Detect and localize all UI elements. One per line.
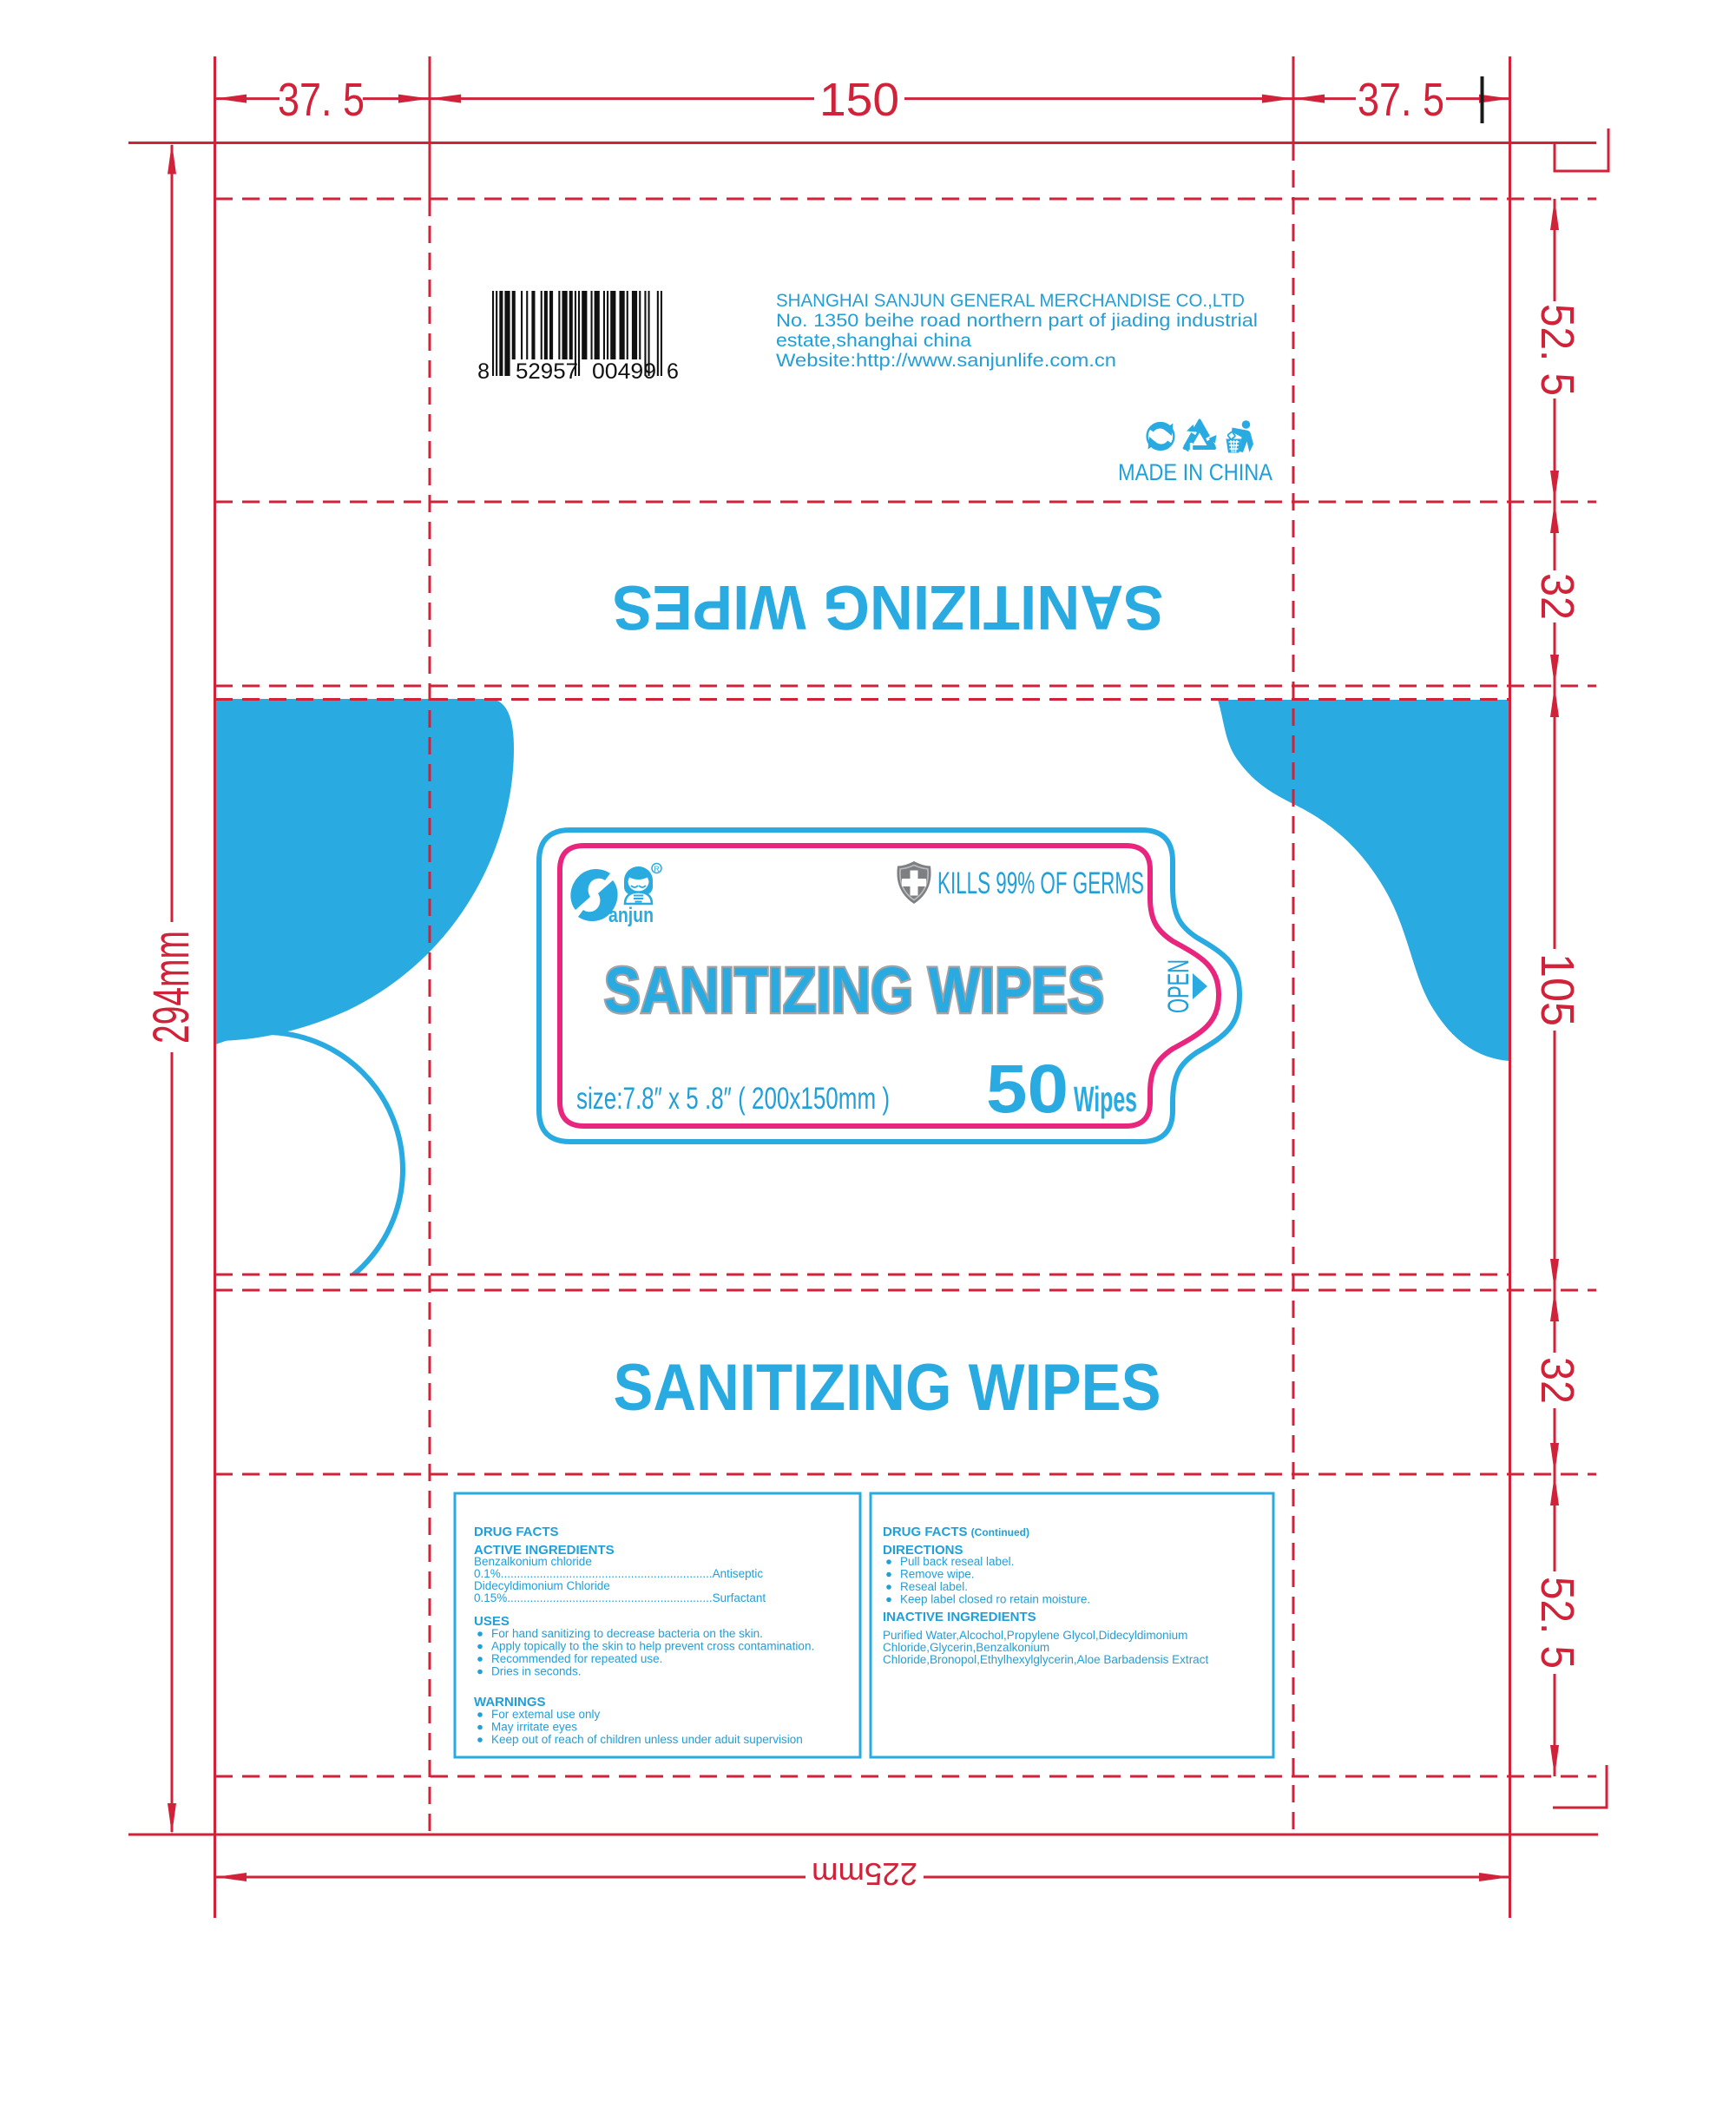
svg-text:52. 5: 52. 5 [1531,1577,1583,1669]
svg-text:DRUG FACTS (Continued): DRUG FACTS (Continued) [883,1525,1029,1539]
svg-text:size:7.8″ x 5 .8″ ( 200x15: size:7.8″ x 5 .8″ ( 200x150mm ) [576,1082,890,1116]
svg-text:Didecyldimonium Chloride: Didecyldimonium Chloride [474,1579,610,1592]
svg-text:Chloride,Bronopol,Ethylhexylgl: Chloride,Bronopol,Ethylhexylglycerin,Alo… [883,1653,1208,1666]
svg-text:150: 150 [819,74,899,126]
svg-text:32: 32 [1531,573,1583,620]
svg-text:No. 1350 beihe road northern p: No. 1350 beihe road northern part of jia… [776,310,1258,331]
svg-text:00499: 00499 [592,359,656,384]
svg-text:Chloride,Glycerin,Benzalkonium: Chloride,Glycerin,Benzalkonium [883,1641,1049,1654]
svg-text:SHANGHAI SANJUN GENERAL MERCHA: SHANGHAI SANJUN GENERAL MERCHANDISE CO.,… [776,290,1245,311]
svg-text:Wipes: Wipes [1074,1079,1137,1119]
svg-text:SANITIZING WIPES: SANITIZING WIPES [613,572,1164,642]
svg-text:Recommended for repeated use.: Recommended for repeated use. [491,1652,662,1665]
svg-text:INACTIVE INGREDIENTS: INACTIVE INGREDIENTS [883,1610,1036,1624]
svg-text:Keep label closed ro retain mo: Keep label closed ro retain moisture. [900,1593,1090,1606]
svg-text:Apply topically to the skin to: Apply topically to the skin to help prev… [491,1640,814,1653]
svg-text:32: 32 [1531,1357,1583,1404]
svg-text:Website:http://www.sanjunlife.: Website:http://www.sanjunlife.com.cn [776,350,1116,371]
svg-text:For hand sanitizing to decreas: For hand sanitizing to decrease bacteria… [491,1627,763,1640]
svg-text:37. 5: 37. 5 [278,74,365,126]
svg-text:R: R [654,865,660,873]
svg-text:SANITIZING WIPES: SANITIZING WIPES [614,1351,1161,1425]
svg-text:Dries in seconds.: Dries in seconds. [491,1665,582,1678]
svg-text:estate,shanghai china: estate,shanghai china [776,330,971,351]
svg-text:225mm: 225mm [812,1856,917,1892]
svg-text:Pull back reseal label.: Pull back reseal label. [900,1555,1014,1568]
svg-text:SANITIZING WIPES: SANITIZING WIPES [604,954,1104,1026]
svg-text:anjun: anjun [608,904,654,927]
svg-text:52. 5: 52. 5 [1531,304,1583,396]
svg-text:MADE IN CHINA: MADE IN CHINA [1118,459,1272,485]
svg-text:8: 8 [477,359,490,384]
svg-text:50: 50 [986,1050,1069,1127]
svg-text:May irritate eyes: May irritate eyes [491,1721,577,1734]
svg-text:Remove wipe.: Remove wipe. [900,1568,975,1581]
svg-text:For extemal use only: For extemal use only [491,1708,601,1721]
svg-text:294mm: 294mm [143,931,200,1044]
svg-text:OPEN: OPEN [1162,959,1195,1013]
svg-text:Keep out of reach of children: Keep out of reach of children unless und… [491,1733,803,1746]
svg-text:Benzalkonium chloride: Benzalkonium chloride [474,1555,592,1568]
svg-text:0.15%.........................: 0.15%...................................… [474,1591,766,1604]
svg-text:Purified Water,Alcochol,Propyl: Purified Water,Alcochol,Propylene Glycol… [883,1629,1187,1642]
svg-text:6: 6 [667,359,679,384]
svg-text:37. 5: 37. 5 [1358,74,1444,126]
svg-text:52957: 52957 [516,359,578,384]
svg-text:KILLS 99% OF GERMS: KILLS 99% OF GERMS [937,866,1144,900]
svg-text:0.1%..........................: 0.1%....................................… [474,1567,763,1580]
svg-text:Reseal label.: Reseal label. [900,1580,968,1593]
svg-text:105: 105 [1531,953,1583,1026]
svg-text:DRUG FACTS: DRUG FACTS [474,1525,559,1539]
